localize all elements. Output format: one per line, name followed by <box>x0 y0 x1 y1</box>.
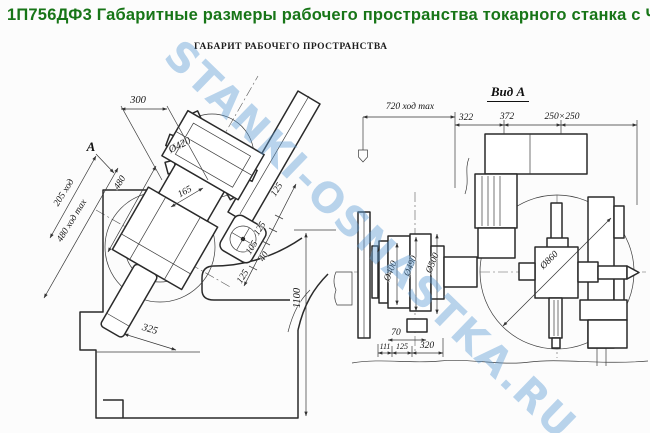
tool-right-shaft <box>598 266 627 279</box>
page: 1П756ДФ3 Габаритные размеры рабочего про… <box>0 0 650 433</box>
plumb-weight <box>359 150 368 162</box>
tool-right-tip <box>627 266 639 279</box>
dim-label-372: 372 <box>499 112 515 122</box>
technical-drawing: 300 A Ø420 205 ход 480 ход max 480 165 1… <box>0 0 650 433</box>
view-direction-label: A <box>86 139 96 154</box>
dim-label-480: 480 <box>112 174 128 192</box>
dim-label-111: 111 <box>380 342 391 351</box>
dim-label-300: 300 <box>129 95 147 106</box>
column-nub-top <box>614 206 624 238</box>
tool-right-holder <box>578 262 598 282</box>
break-fragment <box>334 272 352 305</box>
base-step-lower <box>588 320 627 348</box>
tool-left <box>519 263 535 280</box>
view-a-title: Вид А <box>490 84 526 99</box>
hose <box>465 158 469 194</box>
left-view: 300 A Ø420 205 ход 480 ход max 480 165 1… <box>44 76 352 418</box>
headstock-box <box>485 134 587 174</box>
ram-column-upper <box>475 174 517 228</box>
dim-label-322: 322 <box>458 113 474 123</box>
dim-label-chain-125c: 125 <box>235 268 251 286</box>
tool-bottom <box>549 298 562 338</box>
dim-label-250x250: 250×250 <box>545 112 580 122</box>
dim-label-70: 70 <box>391 328 401 338</box>
dim-label-720: 720 ход max <box>386 101 435 112</box>
dim-label-chain-40: 40 <box>258 250 272 264</box>
dim-label-125: 125 <box>396 342 408 351</box>
dim-label-320: 320 <box>419 341 435 351</box>
right-view: Вид А <box>352 84 648 366</box>
ram-column-lower <box>478 228 515 258</box>
dim-label-205: 205 ход <box>51 177 76 208</box>
dim-label-1100: 1100 <box>292 287 303 308</box>
dim-label-325: 325 <box>140 322 159 337</box>
base-step-upper <box>580 300 627 320</box>
